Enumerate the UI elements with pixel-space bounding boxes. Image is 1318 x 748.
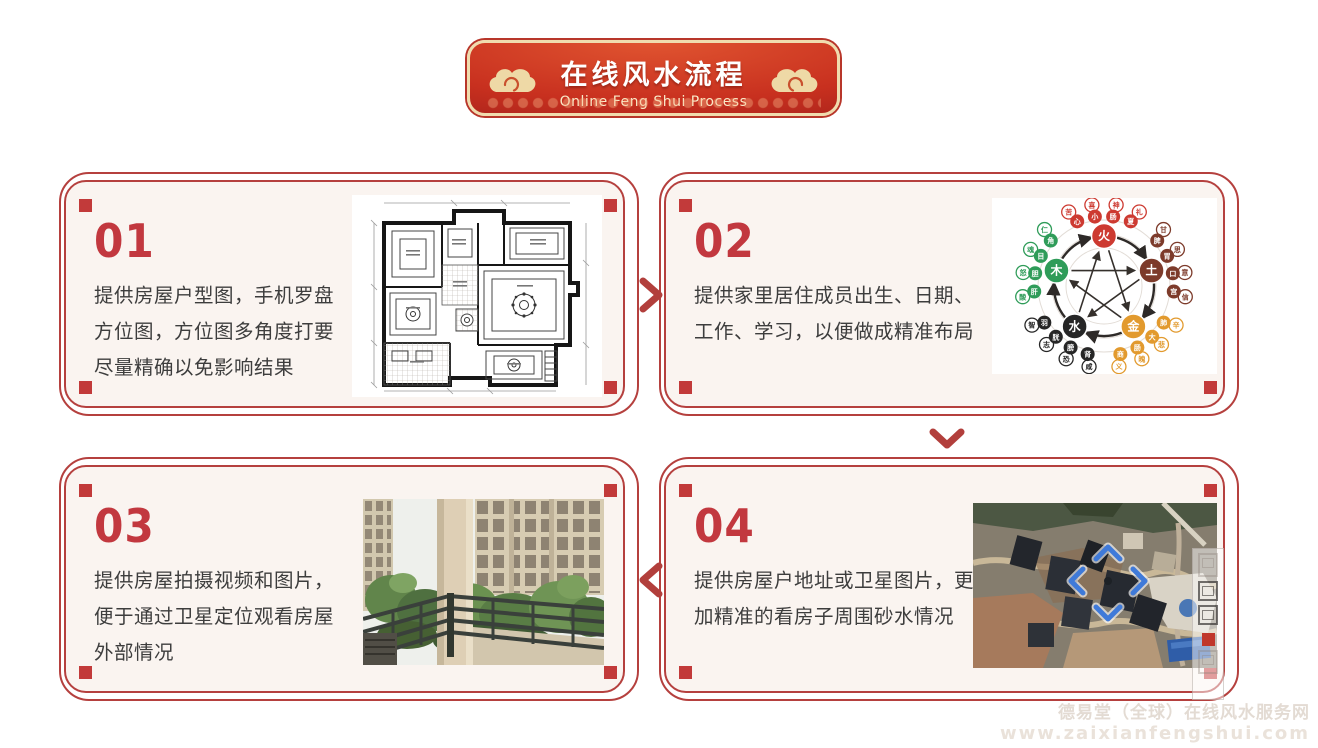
svg-text:意: 意 — [1181, 268, 1188, 277]
seal-cell — [1198, 553, 1218, 577]
svg-text:智: 智 — [1028, 321, 1035, 330]
seal-cell — [1198, 605, 1218, 625]
flow-arrow-left-icon — [637, 562, 665, 598]
card-corner-square — [1204, 484, 1217, 497]
svg-text:水: 水 — [1069, 319, 1082, 334]
svg-text:志: 志 — [1043, 340, 1050, 349]
svg-text:土: 土 — [1146, 263, 1158, 278]
svg-text:苦: 苦 — [1065, 208, 1072, 217]
five-elements-image: 苦喜神礼心小肠夏火甘思意信脾胃口宫土辛悲魄义肺大肠商金咸恐志智肾膀胱羽水酸怒魂仁… — [992, 198, 1217, 374]
header-banner: 在线风水流程 Online Feng Shui Process — [467, 40, 840, 116]
svg-text:目: 目 — [1037, 252, 1044, 260]
step-description-line: 提供房屋户型图，手机罗盘 — [94, 278, 334, 314]
svg-text:肾: 肾 — [1084, 350, 1091, 359]
step-card-4: 04 提供房屋户地址或卫星图片，更 加精准的看房子周围砂水情况 — [664, 465, 1225, 693]
satellite-photo — [973, 503, 1217, 668]
watermark-site-url: www.zaixianfengshui.com — [1000, 723, 1310, 744]
card-corner-square — [604, 199, 617, 212]
svg-text:仁: 仁 — [1041, 225, 1048, 234]
svg-text:宫: 宫 — [1170, 287, 1177, 296]
step-number: 03 — [94, 499, 155, 553]
card-corner-square — [679, 381, 692, 394]
svg-text:肝: 肝 — [1031, 287, 1038, 296]
svg-text:礼: 礼 — [1136, 208, 1143, 217]
step-description-line: 提供房屋拍摄视频和图片， — [94, 563, 334, 599]
card-corner-square — [1204, 381, 1217, 394]
card-corner-square — [679, 484, 692, 497]
card-corner-square — [79, 484, 92, 497]
flow-arrow-right-icon — [637, 277, 665, 313]
step-description: 提供房屋拍摄视频和图片， 便于通过卫星定位观看房屋 外部情况 — [94, 563, 334, 671]
svg-text:信: 信 — [1182, 292, 1189, 301]
svg-text:夏: 夏 — [1126, 217, 1135, 226]
step-card-2: 02 提供家里居住成员出生、日期、 工作、学习，以便做成精准布局 苦喜神礼心小肠… — [664, 180, 1225, 408]
card-corner-square — [79, 199, 92, 212]
svg-text:膀: 膀 — [1066, 343, 1074, 352]
svg-text:心: 心 — [1074, 217, 1081, 226]
step-card-3: 03 提供房屋拍摄视频和图片， 便于通过卫星定位观看房屋 外部情况 — [64, 465, 625, 693]
card-corner-square — [604, 666, 617, 679]
step-description-line: 加精准的看房子周围砂水情况 — [694, 599, 974, 635]
step-number: 04 — [694, 499, 755, 553]
svg-text:金: 金 — [1126, 319, 1140, 334]
site-watermark: 德易堂（全球）在线风水服务网 www.zaixianfengshui.com — [1000, 698, 1310, 744]
seal-cell — [1198, 581, 1218, 601]
svg-text:肠: 肠 — [1133, 343, 1141, 352]
balcony-photo — [363, 499, 604, 665]
svg-text:脾: 脾 — [1153, 236, 1161, 245]
svg-text:胱: 胱 — [1052, 332, 1059, 341]
svg-text:悲: 悲 — [1158, 340, 1165, 349]
flow-arrow-down-icon — [928, 427, 966, 451]
cloud-ornament-left-icon — [486, 65, 538, 99]
step-number: 02 — [694, 214, 755, 268]
card-corner-square — [679, 199, 692, 212]
step-description: 提供家里居住成员出生、日期、 工作、学习，以便做成精准布局 — [694, 278, 974, 350]
svg-text:肠: 肠 — [1109, 212, 1117, 221]
svg-text:羽: 羽 — [1041, 319, 1048, 327]
step-description-line: 外部情况 — [94, 635, 334, 671]
card-corner-square — [604, 381, 617, 394]
svg-text:肺: 肺 — [1160, 318, 1167, 327]
svg-text:辛: 辛 — [1173, 321, 1180, 330]
watermark-seal — [1192, 548, 1224, 700]
svg-text:咸: 咸 — [1085, 362, 1093, 371]
svg-text:魄: 魄 — [1138, 354, 1145, 363]
step-description: 提供房屋户地址或卫星图片，更 加精准的看房子周围砂水情况 — [694, 563, 974, 635]
svg-text:思: 思 — [1174, 245, 1181, 254]
svg-text:神: 神 — [1113, 201, 1120, 210]
banner-cloud-pattern — [486, 97, 821, 109]
svg-text:甘: 甘 — [1160, 225, 1167, 234]
svg-text:魂: 魂 — [1027, 245, 1034, 254]
step-description-line: 工作、学习，以便做成精准布局 — [694, 314, 974, 350]
svg-text:大: 大 — [1149, 332, 1156, 341]
svg-text:商: 商 — [1117, 350, 1124, 359]
svg-text:胃: 胃 — [1164, 251, 1171, 260]
svg-text:恐: 恐 — [1063, 354, 1070, 363]
svg-text:喜: 喜 — [1088, 201, 1095, 210]
step-description: 提供房屋户型图，手机罗盘 方位图，方位图多角度打要 尽量精确以免影响结果 — [94, 278, 334, 386]
svg-text:小: 小 — [1090, 212, 1098, 221]
card-corner-square — [79, 666, 92, 679]
svg-text:怒: 怒 — [1020, 268, 1028, 277]
step-description-line: 提供房屋户地址或卫星图片，更 — [694, 563, 974, 599]
step-card-1: 01 提供房屋户型图，手机罗盘 方位图，方位图多角度打要 尽量精确以免影响结果 — [64, 180, 625, 408]
five-elements-diagram: 苦喜神礼心小肠夏火甘思意信脾胃口宫土辛悲魄义肺大肠商金咸恐志智肾膀胱羽水酸怒魂仁… — [992, 198, 1217, 374]
step-number: 01 — [94, 214, 155, 268]
card-corner-square — [604, 484, 617, 497]
cloud-ornament-right-icon — [769, 65, 821, 99]
page: 在线风水流程 Online Feng Shui Process 01 提供房屋户… — [0, 0, 1318, 748]
svg-text:酸: 酸 — [1019, 292, 1027, 301]
floor-plan-image — [352, 195, 602, 397]
seal-cell — [1198, 650, 1218, 674]
svg-text:火: 火 — [1098, 229, 1111, 243]
svg-text:木: 木 — [1049, 263, 1063, 278]
svg-text:角: 角 — [1047, 236, 1054, 245]
card-corner-square — [79, 381, 92, 394]
svg-text:口: 口 — [1169, 270, 1176, 278]
seal-red-stamp — [1202, 633, 1215, 646]
step-description-line: 提供家里居住成员出生、日期、 — [694, 278, 974, 314]
watermark-site-name: 德易堂（全球）在线风水服务网 — [1000, 698, 1310, 723]
svg-text:胆: 胆 — [1031, 269, 1039, 278]
step-description-line: 便于通过卫星定位观看房屋 — [94, 599, 334, 635]
step-description-line: 尽量精确以免影响结果 — [94, 350, 334, 386]
step-description-line: 方位图，方位图多角度打要 — [94, 314, 334, 350]
svg-text:义: 义 — [1114, 362, 1123, 371]
card-corner-square — [679, 666, 692, 679]
